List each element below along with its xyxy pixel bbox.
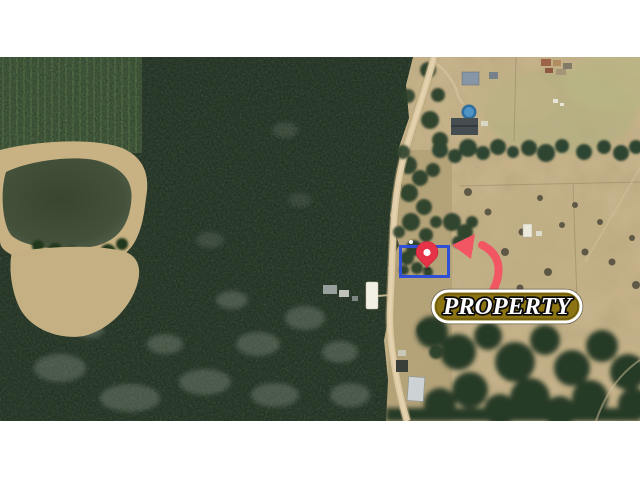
property-badge: PROPERTY [432, 290, 583, 324]
listing-map-screenshot: PROPERTY [0, 0, 640, 480]
satellite-imagery: PROPERTY [0, 57, 640, 421]
letterbox-bottom [0, 421, 640, 480]
property-badge-label: PROPERTY [442, 294, 573, 320]
aerial-photo: PROPERTY [0, 57, 640, 421]
white-speck [409, 240, 413, 244]
letterbox-top [0, 0, 640, 57]
pond [0, 141, 147, 264]
